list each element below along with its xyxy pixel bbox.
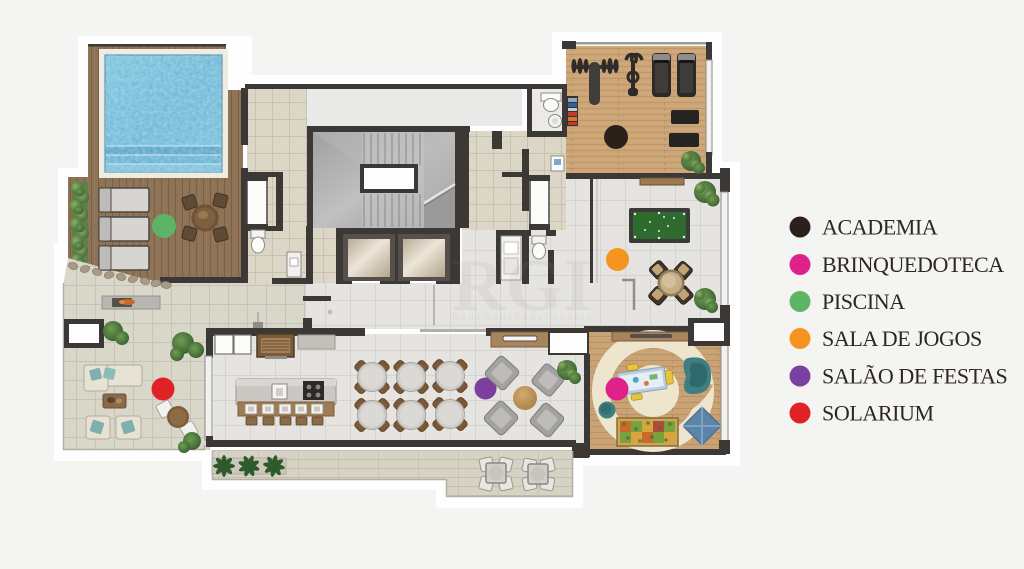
svg-text:SALÃO DE FESTAS: SALÃO DE FESTAS [822, 364, 1007, 389]
svg-text:R e d e G a u c h a d e I m o: R e d e G a u c h a d e I m o v e i s [452, 312, 592, 322]
svg-text:SOLARIUM: SOLARIUM [822, 401, 934, 426]
svg-text:SALA DE JOGOS: SALA DE JOGOS [822, 326, 982, 351]
svg-text:PISCINA: PISCINA [822, 289, 905, 314]
svg-text:BRINQUEDOTECA: BRINQUEDOTECA [822, 252, 1004, 277]
svg-text:ACADEMIA: ACADEMIA [822, 215, 938, 240]
